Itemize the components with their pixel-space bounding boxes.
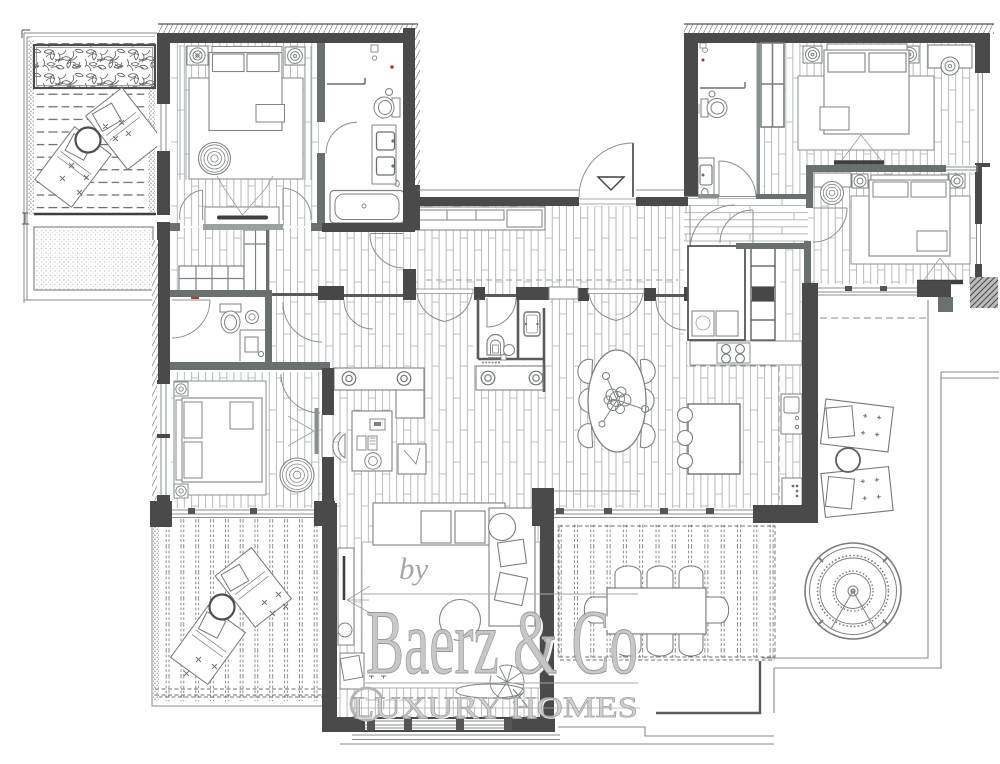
- svg-text:Baerz & Co: Baerz & Co: [366, 591, 638, 693]
- svg-text:LUXURY HOMES: LUXURY HOMES: [352, 691, 638, 724]
- svg-text:by: by: [399, 551, 429, 586]
